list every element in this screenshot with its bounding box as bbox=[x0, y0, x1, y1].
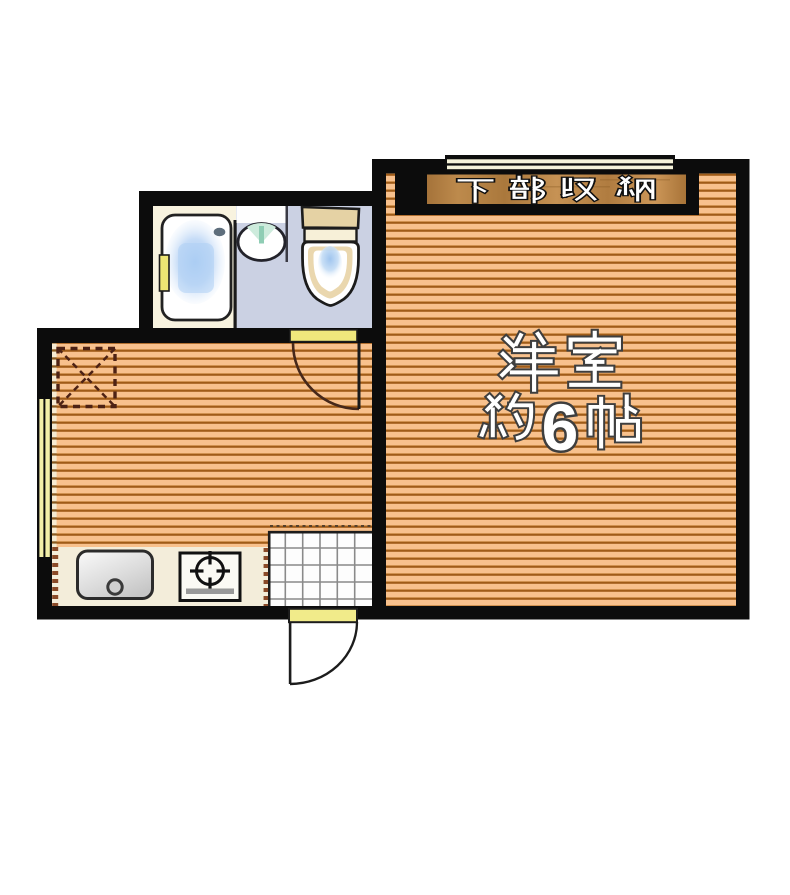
svg-text:6: 6 bbox=[542, 390, 579, 464]
